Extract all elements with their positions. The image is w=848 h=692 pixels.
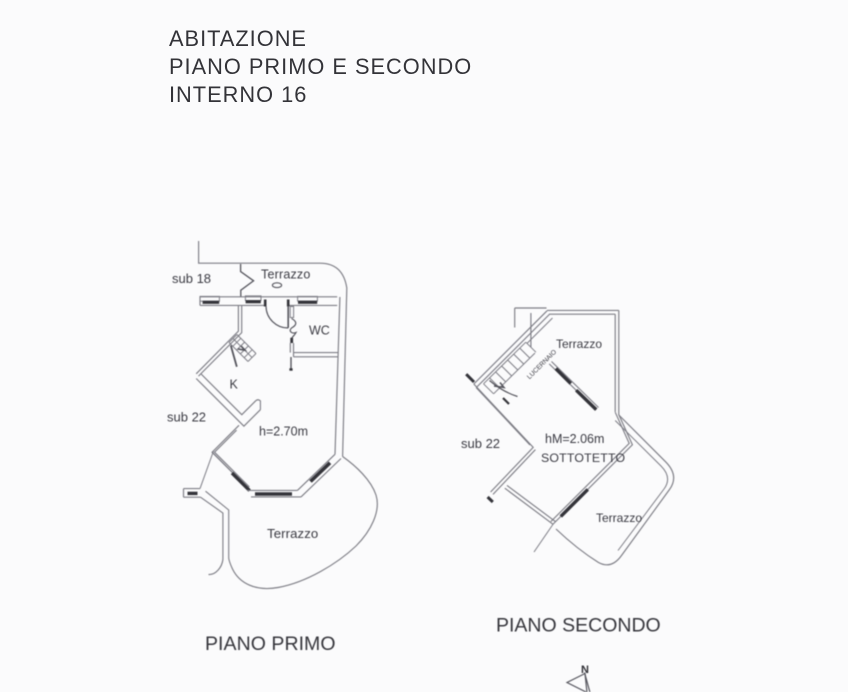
svg-text:LUCERNAIO: LUCERNAIO	[526, 349, 558, 381]
svg-text:Terrazzo: Terrazzo	[267, 526, 318, 541]
svg-text:Terrazzo: Terrazzo	[261, 268, 311, 282]
svg-text:sub 22: sub 22	[461, 436, 500, 451]
svg-text:WC: WC	[309, 324, 330, 338]
svg-text:SOTTOTETTO: SOTTOTETTO	[541, 451, 625, 465]
svg-text:K: K	[230, 378, 239, 392]
svg-text:h=2.70m: h=2.70m	[259, 425, 308, 439]
svg-text:PIANO SECONDO: PIANO SECONDO	[496, 615, 661, 637]
svg-text:PIANO PRIMO: PIANO PRIMO	[205, 633, 336, 655]
svg-text:sub 18: sub 18	[172, 271, 211, 286]
svg-text:Terrazzo: Terrazzo	[556, 337, 602, 351]
svg-text:hM=2.06m: hM=2.06m	[545, 432, 604, 446]
svg-text:sub 22: sub 22	[167, 410, 206, 425]
svg-text:Terrazzo: Terrazzo	[596, 511, 642, 525]
